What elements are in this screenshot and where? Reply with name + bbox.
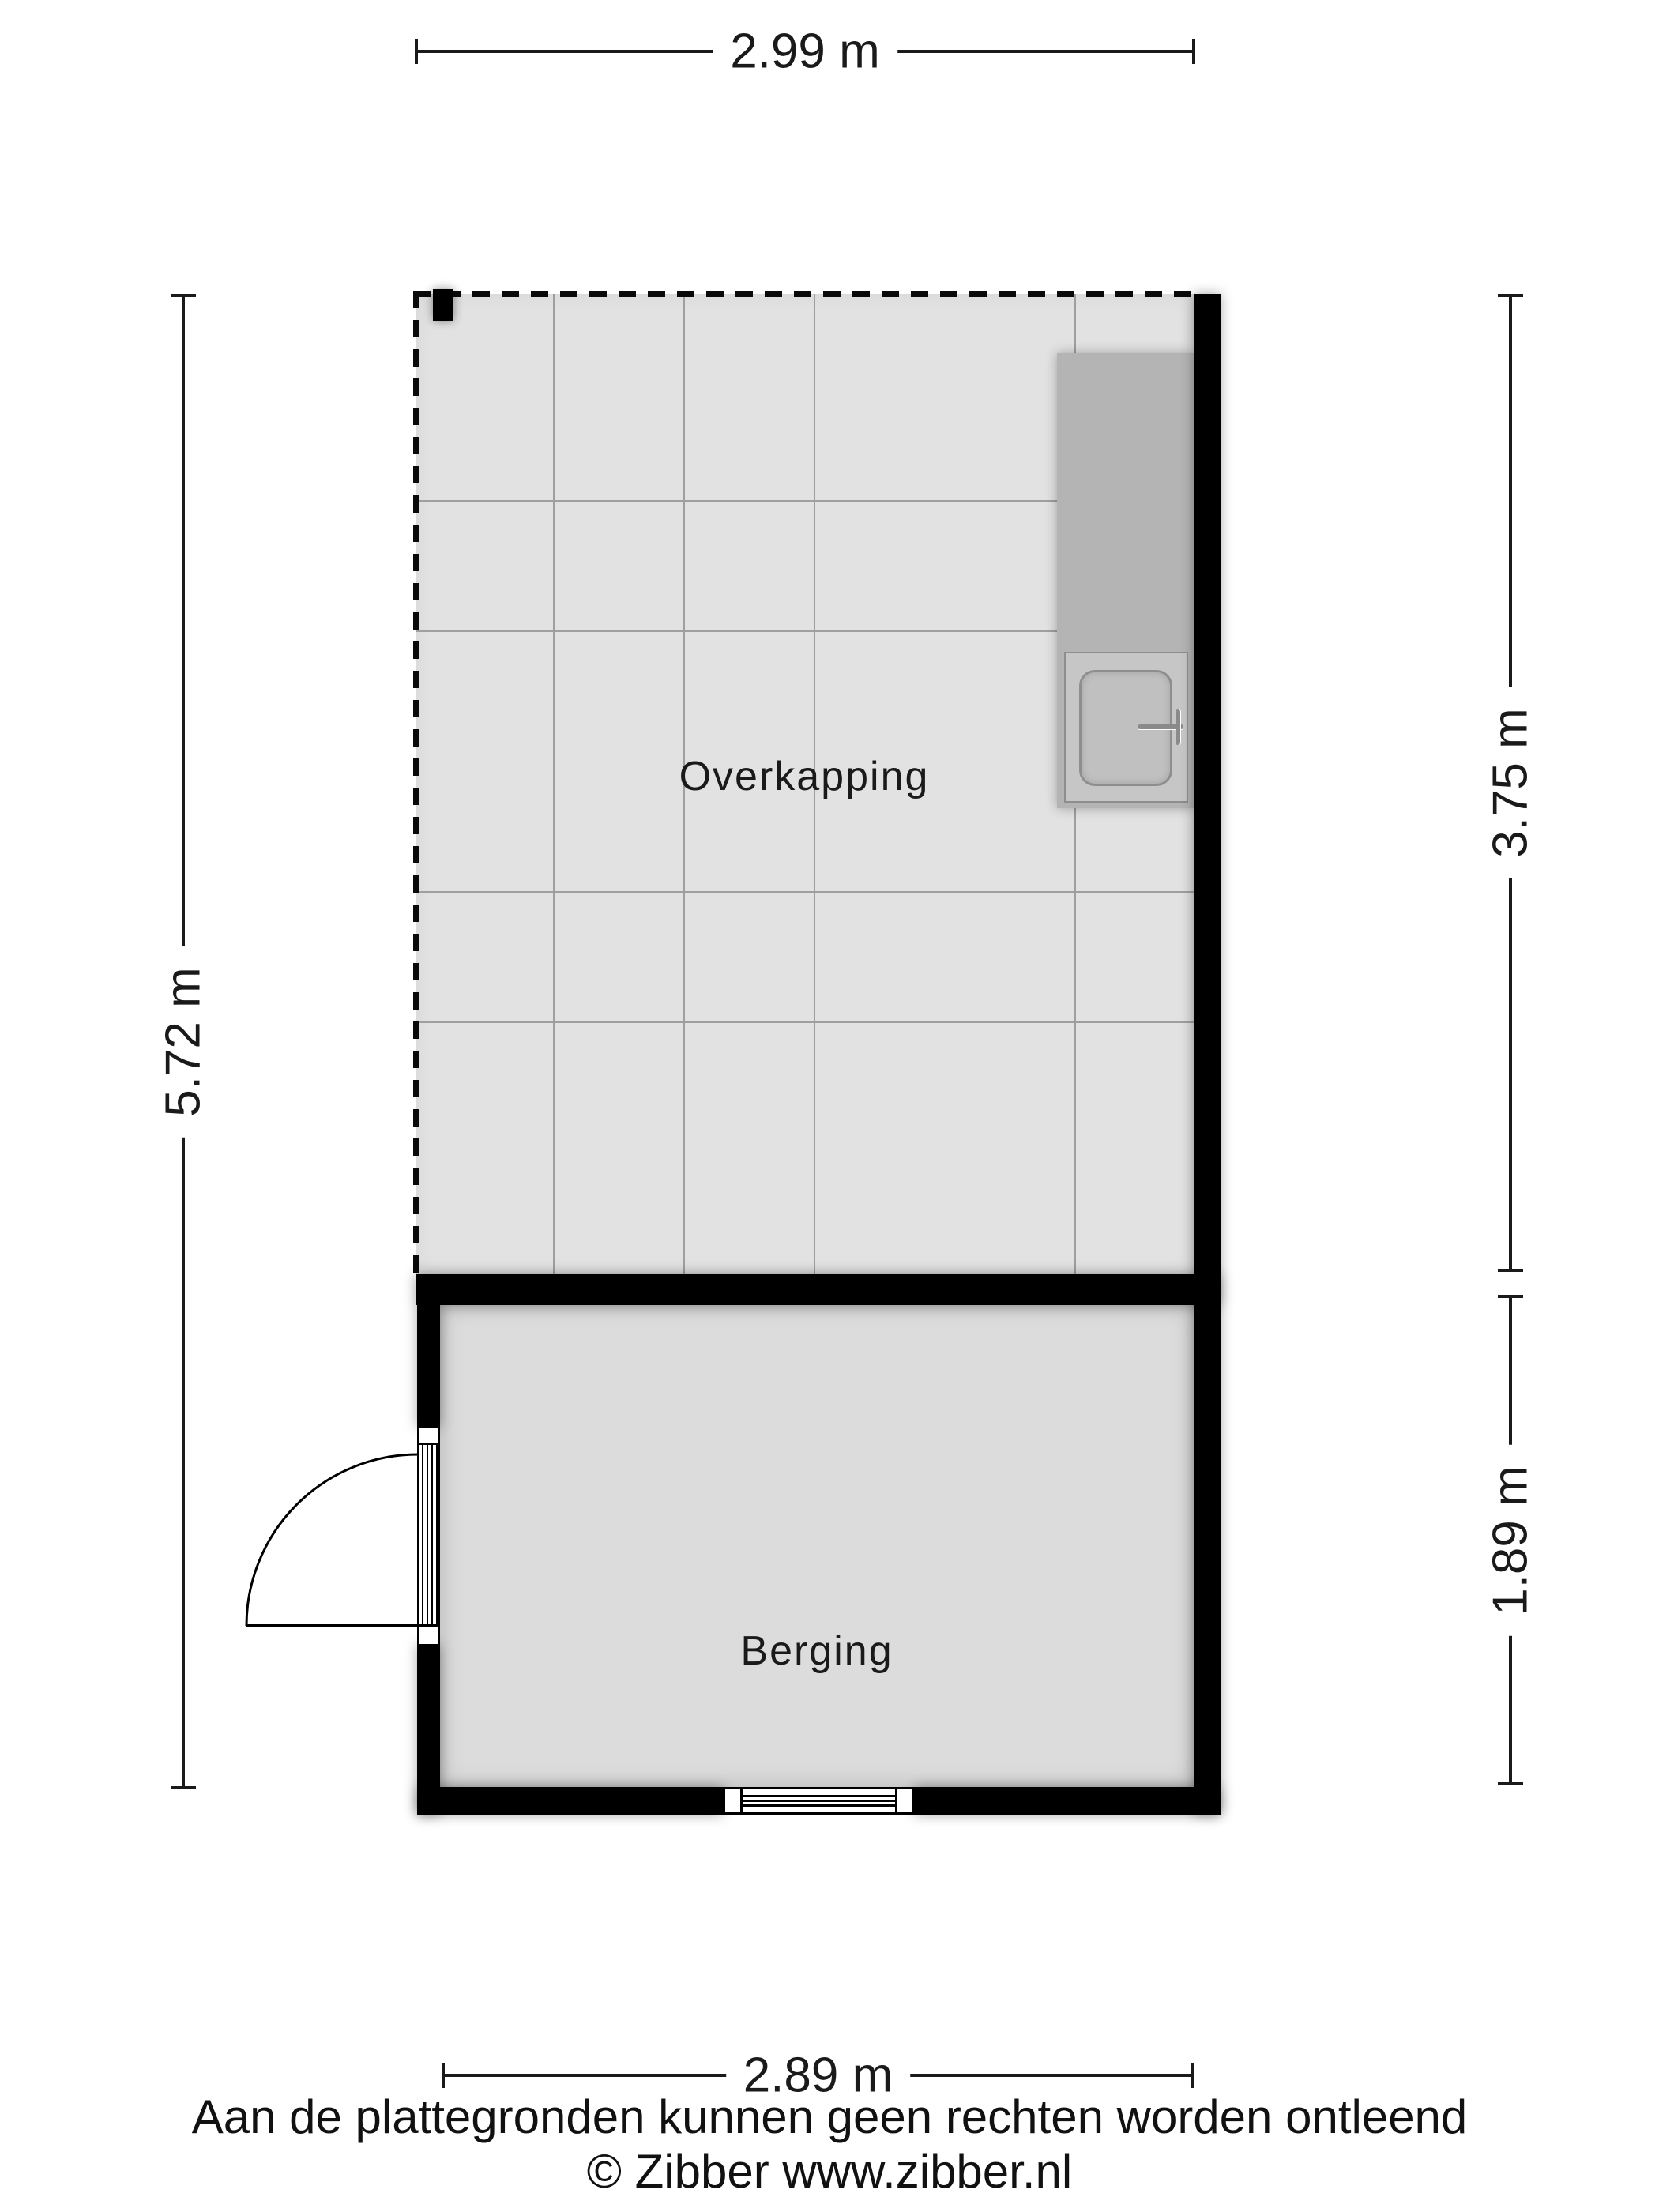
dimension-top: 2.99 m [415,39,1195,64]
room-label-overkapping: Overkapping [679,753,930,800]
faucet-handle-icon [1176,709,1180,745]
dimension-tick [1498,1782,1523,1785]
corner-post [433,289,453,321]
window-glass-line [743,1804,895,1807]
window-glass-line [743,1795,895,1797]
door-jamb-top [417,1425,440,1445]
floorplan-canvas: Overkapping Berging 2.99 m 2.89 m 5.72 m… [0,0,1659,2212]
tile-grid-line [416,891,1194,893]
dimension-tick [442,2063,445,2088]
window-jamb [895,1789,897,1812]
dimension-right-upper-label: 3.75 m [1483,687,1539,878]
footer-copyright: © Zibber www.zibber.nl [0,2144,1659,2199]
dimension-tick [171,1786,196,1789]
dimension-right-lower: 1.89 m [1498,1295,1523,1785]
dimension-right-upper: 3.75 m [1498,294,1523,1272]
dimension-right-lower-label: 1.89 m [1483,1445,1539,1636]
dimension-tick [1498,294,1523,297]
wall-left-upper [417,1305,440,1427]
dimension-tick [171,294,196,297]
dimension-tick [415,39,418,64]
dimension-top-label: 2.99 m [713,24,897,80]
wall-right [1194,294,1221,1815]
dimension-tick [1192,39,1195,64]
dimension-tick [1498,1295,1523,1298]
footer-disclaimer: Aan de plattegronden kunnen geen rechten… [0,2090,1659,2144]
door-leaf [417,1443,440,1626]
dimension-tick [1498,1269,1523,1272]
dimension-bottom: 2.89 m [442,2063,1194,2088]
dashed-boundary-left [413,291,419,1275]
dimension-left-label: 5.72 m [156,946,212,1138]
wall-bottom-right [915,1787,1221,1815]
window-glass-line [743,1800,895,1802]
wall-between-rooms [416,1274,1221,1305]
dimension-left: 5.72 m [171,294,196,1789]
window [723,1787,915,1815]
tile-grid-line [416,1021,1194,1023]
wall-bottom-left [417,1787,723,1815]
dimension-tick [1191,2063,1194,2088]
room-berging-floor [440,1305,1194,1787]
dashed-boundary-top [414,291,1196,297]
room-label-berging: Berging [740,1627,893,1675]
tile-grid-line [553,294,555,1274]
door-jamb-bottom [417,1624,440,1646]
